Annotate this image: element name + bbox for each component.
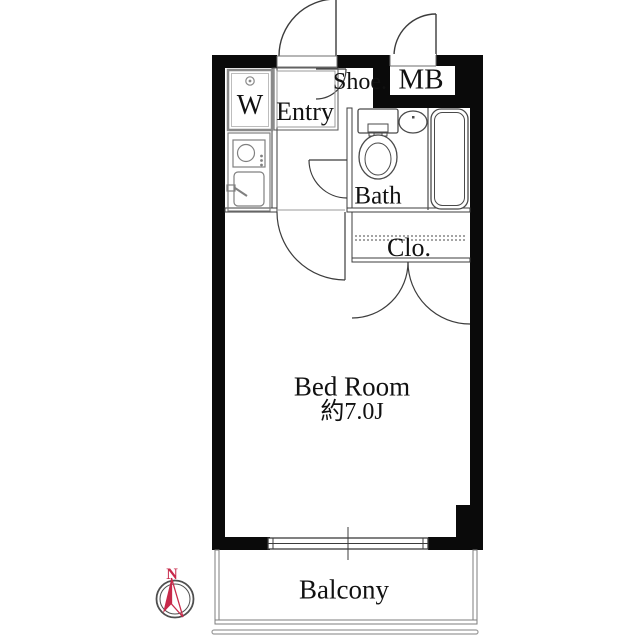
site-boundary-line: [212, 630, 478, 634]
closet-label: Clo.: [387, 235, 431, 261]
floorplan-canvas: W Entry Shoe. MB Bath Clo. Bed Room 約7.0…: [0, 0, 640, 640]
bedroom-door-swing: [277, 212, 345, 280]
compass-north-label: N: [166, 567, 178, 583]
meter-box-label: MB: [398, 66, 443, 95]
compass-north-arrow: [157, 578, 194, 618]
mb-door-arc: [394, 14, 436, 56]
bedroom-label: Bed Room: [294, 374, 410, 401]
closet-door-swings: [352, 262, 470, 324]
washer-label: W: [237, 92, 263, 120]
entry-door-swing: [279, 0, 336, 56]
bedroom-door-arc: [277, 212, 345, 280]
bath-door-arc: [309, 160, 347, 198]
mb-door-swing: [394, 14, 436, 56]
balcony-rail-bottom: [215, 620, 477, 624]
compass-outer-ring: [157, 581, 194, 618]
toilet-icon: [358, 109, 398, 179]
bathtub-icon: [431, 109, 468, 209]
kitchen-sink-icon: [234, 172, 264, 206]
bath-label: Bath: [354, 184, 401, 209]
bedroom-size-label: 約7.0J: [320, 400, 383, 424]
floorplan-drawing: [0, 0, 640, 640]
kitchen-faucet-lever: [235, 188, 247, 196]
wall-right: [470, 55, 483, 550]
closet-door-arc-right: [408, 262, 470, 324]
kitchen: [227, 133, 270, 211]
wall-top-left-segment: [212, 55, 277, 68]
bath-door-swing: [309, 160, 347, 198]
stove-burner: [238, 145, 255, 162]
shoe-cabinet-label: Shoe.: [333, 70, 387, 94]
balcony-rail-right: [473, 550, 477, 624]
wall-bottom-left-segment: [212, 537, 270, 550]
sliding-window-icon: [268, 527, 428, 560]
entry-label: Entry: [276, 99, 334, 125]
wall-bath-left: [347, 108, 352, 212]
washbasin-icon: [399, 111, 427, 133]
balcony-label: Balcony: [299, 577, 389, 604]
wall-left: [212, 55, 225, 550]
wall-top-mid-segment: [337, 55, 373, 68]
balcony-rail-left: [215, 550, 219, 624]
wall-pillar-bottom-right: [456, 505, 483, 550]
entry-door-arc: [279, 0, 336, 56]
closet-door-arc-left: [352, 262, 408, 318]
